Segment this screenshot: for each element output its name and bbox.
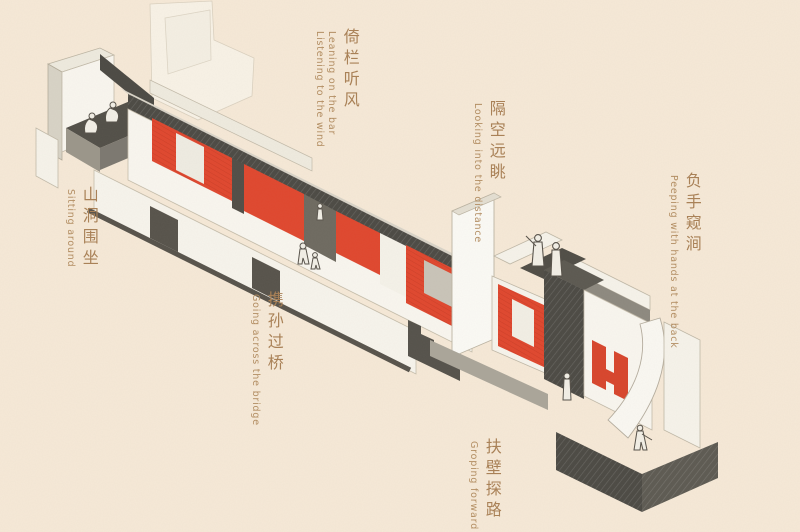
label-looking-en: Looking into the distance (472, 103, 482, 243)
label-groping-zh: 扶壁探路 (483, 438, 500, 530)
label-groping-forward: 扶壁探路 Groping forward (466, 438, 500, 530)
label-leaning-en-2: Listening to the wind (314, 31, 324, 148)
label-groping-en: Groping forward (468, 441, 478, 530)
label-bridge-en: Going across the bridge (250, 294, 260, 426)
illustration-page: 山洞围坐 Sitting around 倚栏听风 Leaning on the … (0, 0, 800, 532)
label-leaning-en-1: Leaning on the bar (326, 31, 336, 148)
label-crossing-bridge: 携孙过桥 Going across the bridge (248, 291, 282, 426)
label-leaning-listening: 倚栏听风 Leaning on the bar Listening to the… (312, 28, 358, 148)
label-peeping-en: Peeping with hands at the back (668, 175, 678, 349)
label-looking-distance: 隔空远眺 Looking into the distance (470, 100, 504, 243)
label-peeping-zh: 负手窥涧 (683, 172, 700, 349)
label-peeping: 负手窥涧 Peeping with hands at the back (666, 172, 700, 349)
label-bridge-zh: 携孙过桥 (265, 291, 282, 426)
label-looking-zh: 隔空远眺 (487, 100, 504, 243)
label-leaning-zh: 倚栏听风 (341, 28, 358, 148)
label-sitting-around-en: Sitting around (65, 189, 75, 270)
label-sitting-around-zh: 山洞围坐 (80, 186, 97, 270)
label-sitting-around: 山洞围坐 Sitting around (63, 186, 97, 270)
